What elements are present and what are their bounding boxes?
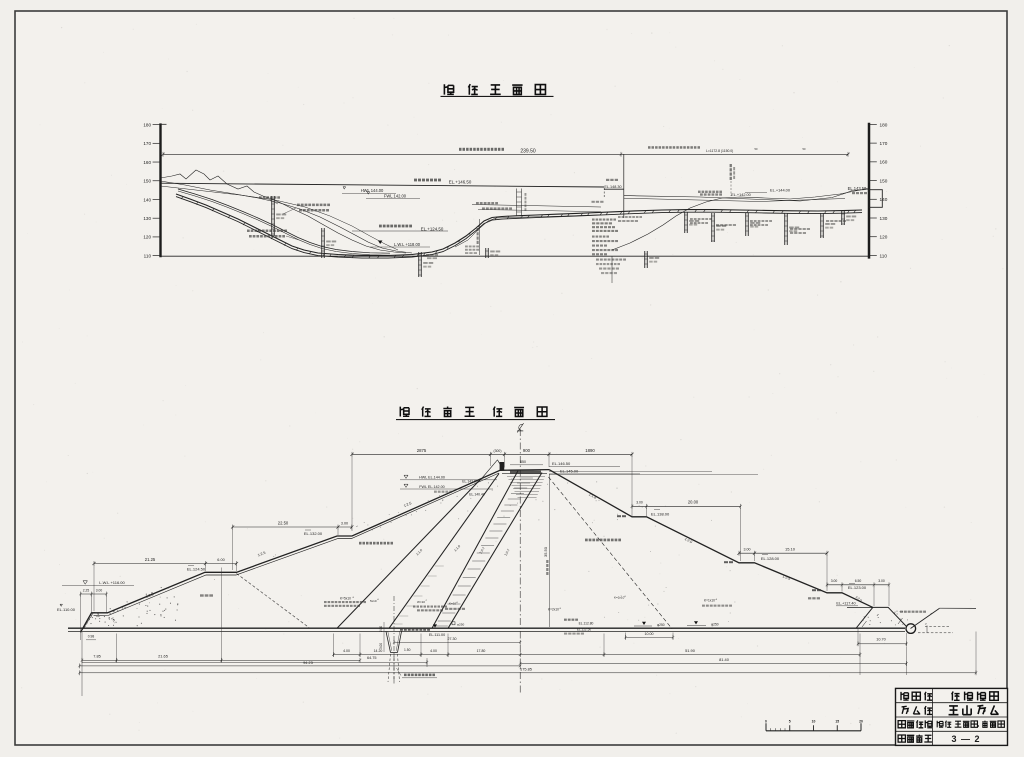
svg-text:170: 170 xyxy=(143,141,151,146)
svg-text:EL.138.00: EL.138.00 xyxy=(651,512,670,517)
svg-text:L.W.L +116.00: L.W.L +116.00 xyxy=(99,580,125,585)
svg-text:3 — 2: 3 — 2 xyxy=(951,734,980,744)
svg-text:175.85: 175.85 xyxy=(520,666,532,671)
svg-text:(300): (300) xyxy=(494,449,502,453)
svg-text:FWL EL.142.00: FWL EL.142.00 xyxy=(419,485,444,489)
svg-text:650: 650 xyxy=(520,460,526,464)
svg-text:HWL EL.144.00: HWL EL.144.00 xyxy=(419,476,445,480)
svg-text:EL.143.60: EL.143.60 xyxy=(462,480,478,484)
svg-text:EL.112.50: EL.112.50 xyxy=(577,628,592,632)
svg-text:3.00: 3.00 xyxy=(96,588,103,592)
svg-text:7.85: 7.85 xyxy=(93,654,101,659)
svg-text:6.50: 6.50 xyxy=(855,579,862,583)
svg-text:EL.+146.50: EL.+146.50 xyxy=(449,179,472,184)
svg-text:3.00: 3.00 xyxy=(831,579,838,583)
svg-text:φ250: φ250 xyxy=(711,623,719,627)
svg-text:130: 130 xyxy=(880,216,888,221)
svg-text:15: 15 xyxy=(835,720,839,724)
svg-text:EL.+124.50: EL.+124.50 xyxy=(421,227,444,232)
svg-text:K=5x10: K=5x10 xyxy=(340,596,351,600)
svg-text:K=2x10: K=2x10 xyxy=(548,608,559,612)
svg-text:2875: 2875 xyxy=(417,448,427,453)
svg-text:150: 150 xyxy=(143,179,151,184)
svg-text:EL.143.50: EL.143.50 xyxy=(848,186,867,191)
svg-text:64.75: 64.75 xyxy=(367,656,377,660)
svg-text:EL.140.40: EL.140.40 xyxy=(469,492,485,496)
svg-text:EL.123.00: EL.123.00 xyxy=(848,585,867,590)
svg-text:EL.+144.00: EL.+144.00 xyxy=(770,188,791,193)
svg-text:180: 180 xyxy=(880,122,888,127)
svg-text:L.W.L +118.00: L.W.L +118.00 xyxy=(394,242,421,247)
svg-text:0: 0 xyxy=(765,720,767,724)
svg-text:170: 170 xyxy=(880,141,888,146)
svg-text:140: 140 xyxy=(880,197,888,202)
svg-text:14.20: 14.20 xyxy=(374,649,383,653)
svg-text:HWL 144.00: HWL 144.00 xyxy=(361,188,384,193)
svg-text:110: 110 xyxy=(880,253,888,258)
svg-text:W=10: W=10 xyxy=(417,600,425,604)
svg-text:21.25: 21.25 xyxy=(145,557,156,562)
svg-text:EL.132.00: EL.132.00 xyxy=(304,531,323,536)
svg-text:3.00: 3.00 xyxy=(744,548,751,552)
svg-text:51.90: 51.90 xyxy=(685,648,696,653)
svg-text:20.00: 20.00 xyxy=(688,500,699,505)
svg-text:EL.111.00: EL.111.00 xyxy=(429,633,445,637)
svg-text:3.00: 3.00 xyxy=(878,579,885,583)
svg-text:17.80: 17.80 xyxy=(477,649,486,653)
svg-text:10.70: 10.70 xyxy=(876,638,886,642)
svg-text:900: 900 xyxy=(523,448,531,453)
svg-text:3.00: 3.00 xyxy=(341,521,348,525)
svg-text:5x10: 5x10 xyxy=(370,599,377,603)
svg-text:160: 160 xyxy=(143,160,151,165)
svg-text:15.10: 15.10 xyxy=(785,547,796,552)
svg-text:110: 110 xyxy=(144,253,152,258)
svg-text:160: 160 xyxy=(880,160,888,165)
svg-text:6.00: 6.00 xyxy=(217,558,224,562)
svg-text:120: 120 xyxy=(143,235,151,240)
svg-text:21.65: 21.65 xyxy=(158,654,168,659)
svg-text:EL.+142.00: EL.+142.00 xyxy=(731,193,751,197)
svg-text:EL.110.00: EL.110.00 xyxy=(57,607,76,612)
svg-text:1.50: 1.50 xyxy=(404,648,411,652)
svg-text:35.50: 35.50 xyxy=(543,546,548,557)
svg-text:22.50: 22.50 xyxy=(278,520,289,525)
svg-text:EL.128.00: EL.128.00 xyxy=(761,556,780,561)
svg-text:EL.145.00: EL.145.00 xyxy=(560,468,579,473)
svg-text:FWL 142.00: FWL 142.00 xyxy=(384,194,407,199)
svg-text:EL.+117.40: EL.+117.40 xyxy=(836,602,855,606)
svg-text:5: 5 xyxy=(789,720,791,724)
svg-text:K=1x10: K=1x10 xyxy=(704,599,715,603)
svg-text:φ250: φ250 xyxy=(657,623,665,627)
svg-text:94.25: 94.25 xyxy=(303,660,313,665)
svg-text:EL.146.50: EL.146.50 xyxy=(552,461,571,466)
svg-text:EL.148.30: EL.148.30 xyxy=(604,185,621,189)
svg-text:1890: 1890 xyxy=(585,448,595,453)
svg-text:10: 10 xyxy=(812,720,816,724)
svg-text:φ250: φ250 xyxy=(457,622,464,626)
svg-text:4.00: 4.00 xyxy=(430,649,437,653)
svg-text:130: 130 xyxy=(143,216,151,221)
svg-text:239.50: 239.50 xyxy=(520,149,536,155)
svg-text:3.00: 3.00 xyxy=(636,501,643,505)
svg-text:10.00: 10.00 xyxy=(645,632,654,636)
svg-text:27.30: 27.30 xyxy=(448,637,457,641)
svg-text:0.98: 0.98 xyxy=(88,634,95,638)
svg-text:150: 150 xyxy=(880,178,888,183)
svg-text:L=1172.8 (1150.0): L=1172.8 (1150.0) xyxy=(706,149,733,153)
svg-text:140: 140 xyxy=(143,197,151,202)
svg-text:EL.124.50: EL.124.50 xyxy=(187,567,206,572)
svg-text:2.00: 2.00 xyxy=(379,626,383,632)
svg-text:20: 20 xyxy=(859,720,863,724)
svg-text:180: 180 xyxy=(143,122,151,127)
svg-text:2.25: 2.25 xyxy=(83,588,90,592)
svg-text:81.40: 81.40 xyxy=(719,657,730,662)
svg-text:120: 120 xyxy=(880,235,888,240)
svg-text:K=2x10: K=2x10 xyxy=(614,596,625,600)
svg-text:4.00: 4.00 xyxy=(343,649,350,653)
svg-text:EL.112.80: EL.112.80 xyxy=(579,621,594,625)
